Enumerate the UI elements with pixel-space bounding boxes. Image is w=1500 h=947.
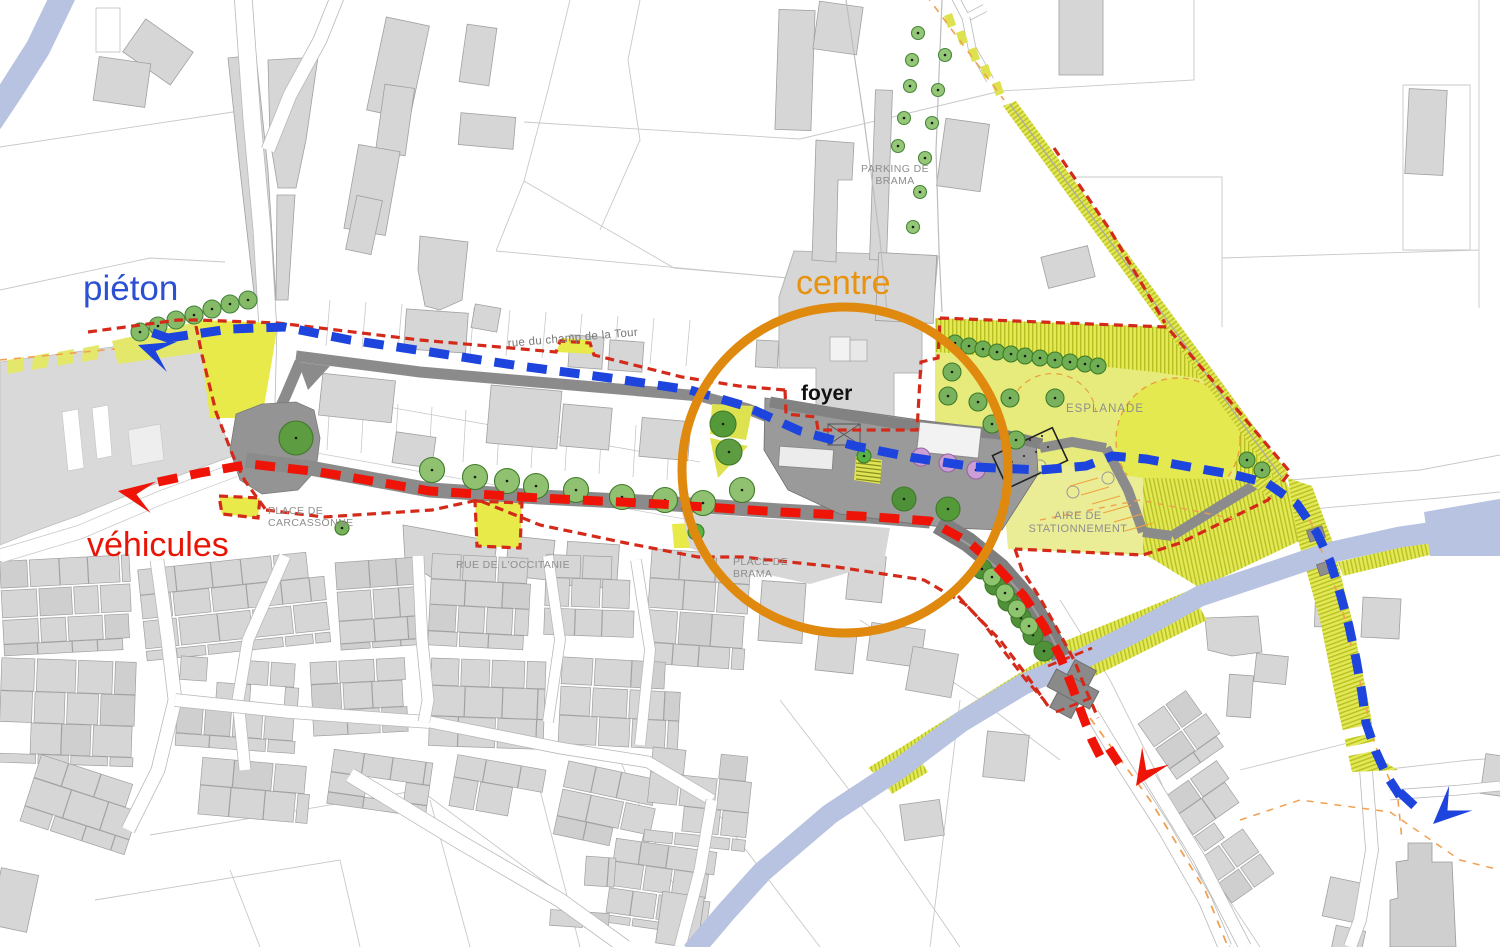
- svg-text:BRAMA: BRAMA: [875, 175, 914, 187]
- svg-text:STATIONNEMENT: STATIONNEMENT: [1029, 523, 1128, 535]
- svg-text:piéton: piéton: [83, 269, 178, 308]
- svg-text:PLACE DE: PLACE DE: [733, 556, 788, 568]
- svg-text:centre: centre: [796, 264, 891, 302]
- svg-text:RUE DE L'OCCITANIE: RUE DE L'OCCITANIE: [456, 559, 570, 571]
- svg-text:foyer: foyer: [801, 382, 852, 405]
- svg-text:véhicules: véhicules: [87, 526, 229, 564]
- svg-text:PLACE DE: PLACE DE: [268, 505, 323, 517]
- svg-text:PARKING DE: PARKING DE: [861, 163, 929, 175]
- svg-text:AIRE DE: AIRE DE: [1054, 510, 1102, 522]
- svg-text:BRAMA: BRAMA: [733, 568, 772, 580]
- svg-text:ESPLANADE: ESPLANADE: [1066, 403, 1144, 415]
- svg-text:CARCASSONNE: CARCASSONNE: [268, 517, 354, 529]
